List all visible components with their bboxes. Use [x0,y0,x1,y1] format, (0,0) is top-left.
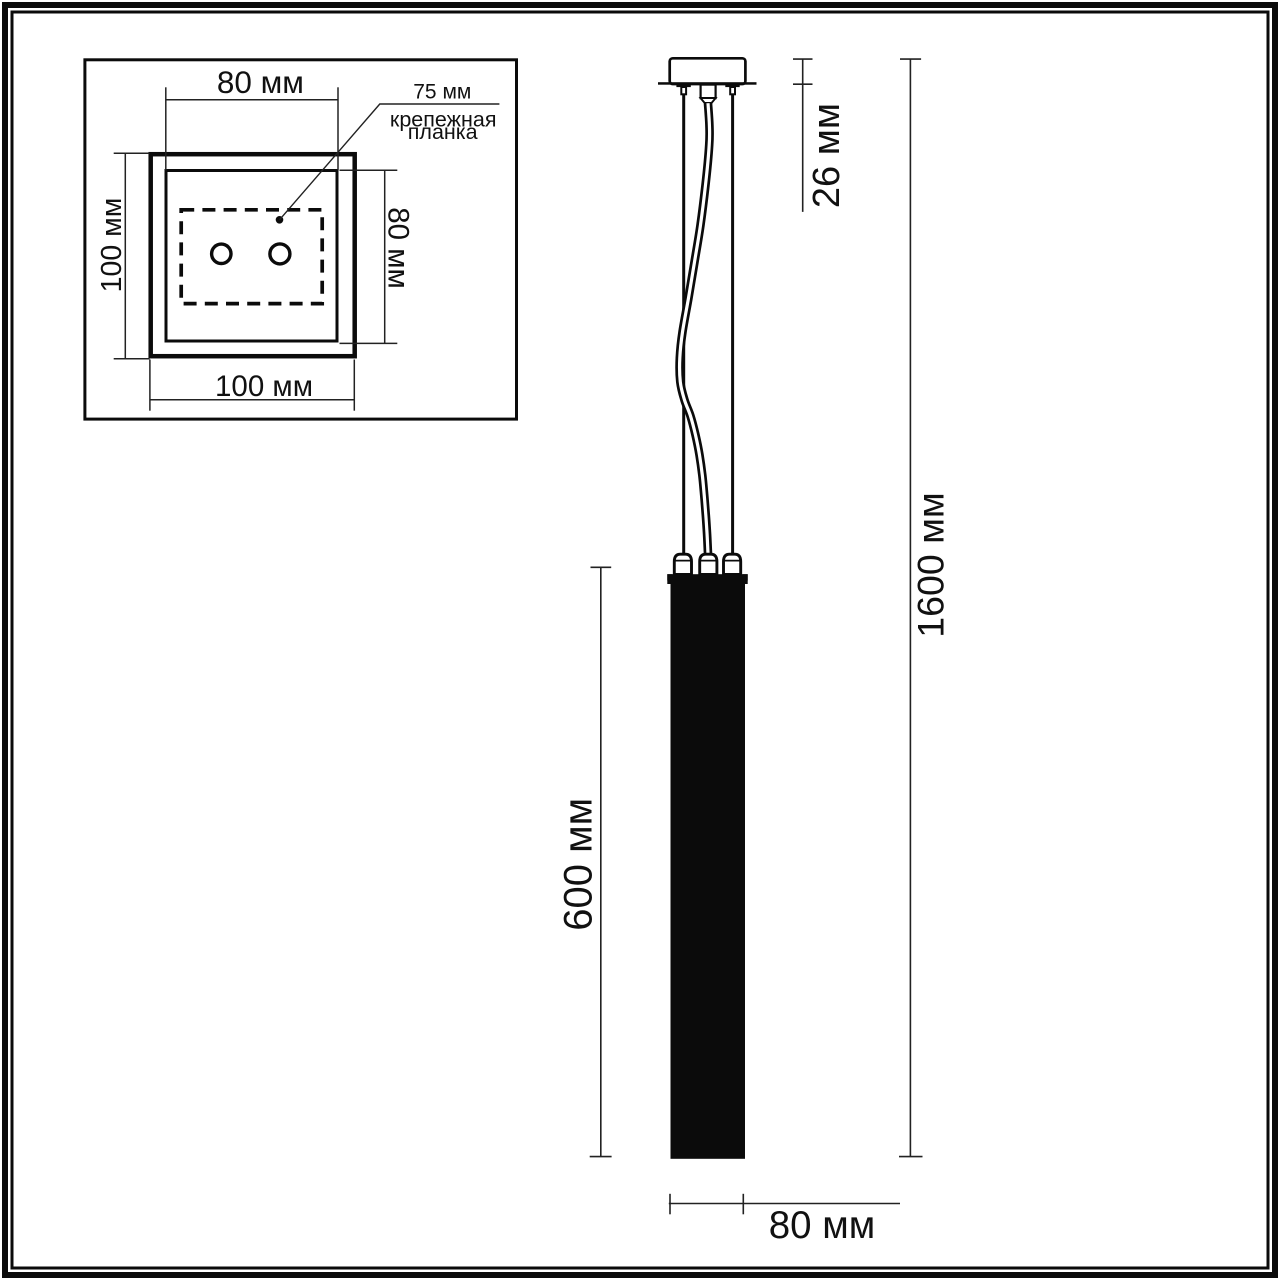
svg-text:планка: планка [408,120,478,144]
svg-text:600 мм: 600 мм [557,798,601,931]
svg-text:1600 мм: 1600 мм [910,492,952,637]
svg-text:75 мм: 75 мм [413,80,471,103]
svg-text:80 мм: 80 мм [382,207,415,289]
svg-text:100 мм: 100 мм [215,370,313,403]
svg-text:100 мм: 100 мм [96,198,128,293]
svg-text:80 мм: 80 мм [769,1204,875,1247]
svg-text:26 мм: 26 мм [806,103,848,208]
svg-text:80 мм: 80 мм [217,64,304,100]
